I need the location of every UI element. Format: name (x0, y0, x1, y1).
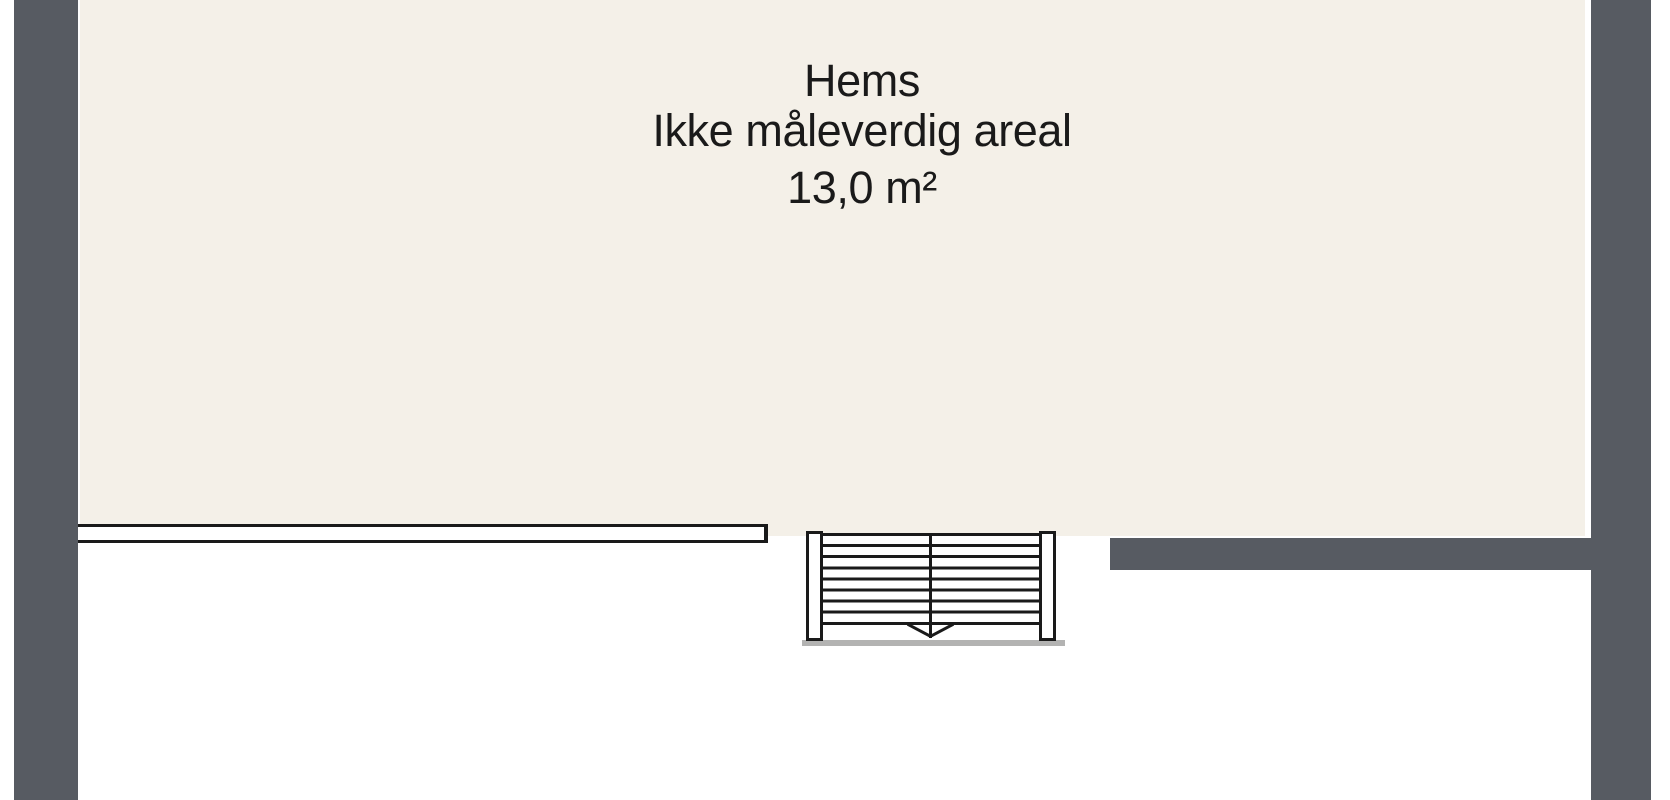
room-note: Ikke måleverdig areal (362, 107, 1362, 155)
room-label: Hems Ikke måleverdig areal 13,0 m² (362, 0, 1362, 230)
loft-railing (78, 524, 768, 543)
stair-shadow (802, 640, 1065, 646)
stair-left-post (806, 531, 823, 641)
floorplan-canvas: Hems Ikke måleverdig areal 13,0 m² (0, 0, 1670, 800)
room-area: 13,0 m² (362, 164, 1362, 212)
stair-right-post (1039, 531, 1056, 641)
right-exterior-wall (1591, 0, 1651, 800)
room-name: Hems (362, 57, 1362, 105)
stair-direction-line (929, 533, 932, 638)
left-exterior-wall (14, 0, 78, 800)
staircase (800, 528, 1070, 648)
interior-wall-segment (1110, 538, 1591, 570)
down-arrow-icon (929, 623, 954, 638)
